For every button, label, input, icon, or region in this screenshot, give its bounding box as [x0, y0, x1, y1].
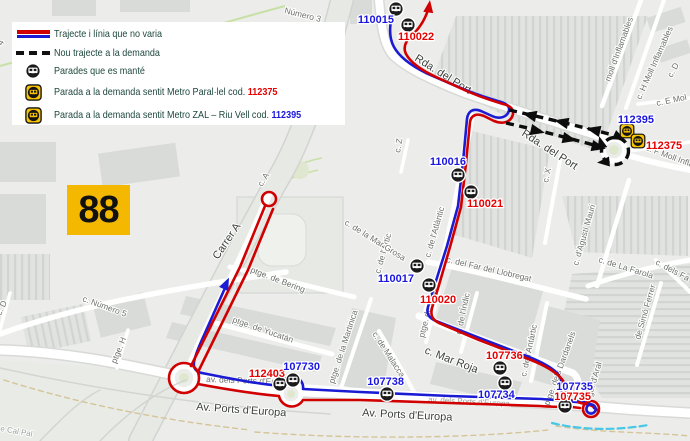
legend-row-demand-line: Nou trajecte a la demanda	[12, 45, 177, 61]
legend-label: Parada a la demanda sentit Metro ZAL – R…	[54, 109, 272, 121]
stop-code-label: 110021	[467, 198, 503, 210]
demand-stop-icon	[631, 134, 645, 148]
legend-label: Nou trajecte a la demanda	[54, 47, 160, 59]
stop-code-label: 107738	[367, 376, 404, 388]
kept-stop-icon	[12, 62, 54, 80]
kept-stop-icon	[493, 361, 508, 376]
kept-stop-icon	[286, 373, 301, 388]
legend-panel: Trajecte i línia que no varia Nou trajec…	[12, 22, 345, 125]
kept-stop-icon	[422, 278, 437, 293]
stop-code-label: 112403	[249, 368, 285, 380]
stop-code-label: 110016	[430, 156, 466, 168]
legend-row-fixed-line: Trajecte i línia que no varia	[12, 26, 180, 42]
legend-label: Trajecte i línia que no varia	[54, 28, 162, 40]
legend-label: Parades que es manté	[54, 65, 145, 77]
legend-stop-code: 112375	[248, 86, 278, 98]
legend-stop-code: 112395	[272, 109, 302, 121]
stop-code-label: 107734	[478, 389, 516, 401]
stop-code-label: 107730	[283, 361, 320, 373]
legend-row-demand-stop-zal: Parada a la demanda sentit Metro ZAL – R…	[12, 107, 341, 123]
legend-label: Parada a la demanda sentit Metro Paral·l…	[54, 86, 248, 98]
stop-code-label: 110015	[358, 14, 394, 26]
kept-stop-icon	[410, 259, 425, 274]
demand-stop-icon	[12, 106, 54, 125]
stop-code-label: 110017	[378, 273, 414, 285]
route-line-swatch	[12, 30, 54, 38]
route-number-badge: 88	[67, 185, 130, 235]
dashed-line-swatch	[12, 51, 54, 55]
legend-row-demand-stop-parallel: Parada a la demanda sentit Metro Paral·l…	[12, 84, 314, 100]
stop-code-label: 112395	[618, 114, 654, 126]
stop-code-label: 110022	[398, 31, 434, 43]
kept-stop-icon	[451, 168, 466, 183]
stop-code-label: 107735	[554, 391, 591, 403]
kept-stop-icon	[380, 387, 395, 402]
stop-code-label: 112375	[646, 140, 682, 152]
stop-code-label: 107736	[486, 350, 523, 362]
legend-row-kept-stops: Parades que es manté	[12, 63, 160, 79]
stop-code-label: 110020	[420, 294, 456, 306]
demand-stop-icon	[12, 83, 54, 102]
